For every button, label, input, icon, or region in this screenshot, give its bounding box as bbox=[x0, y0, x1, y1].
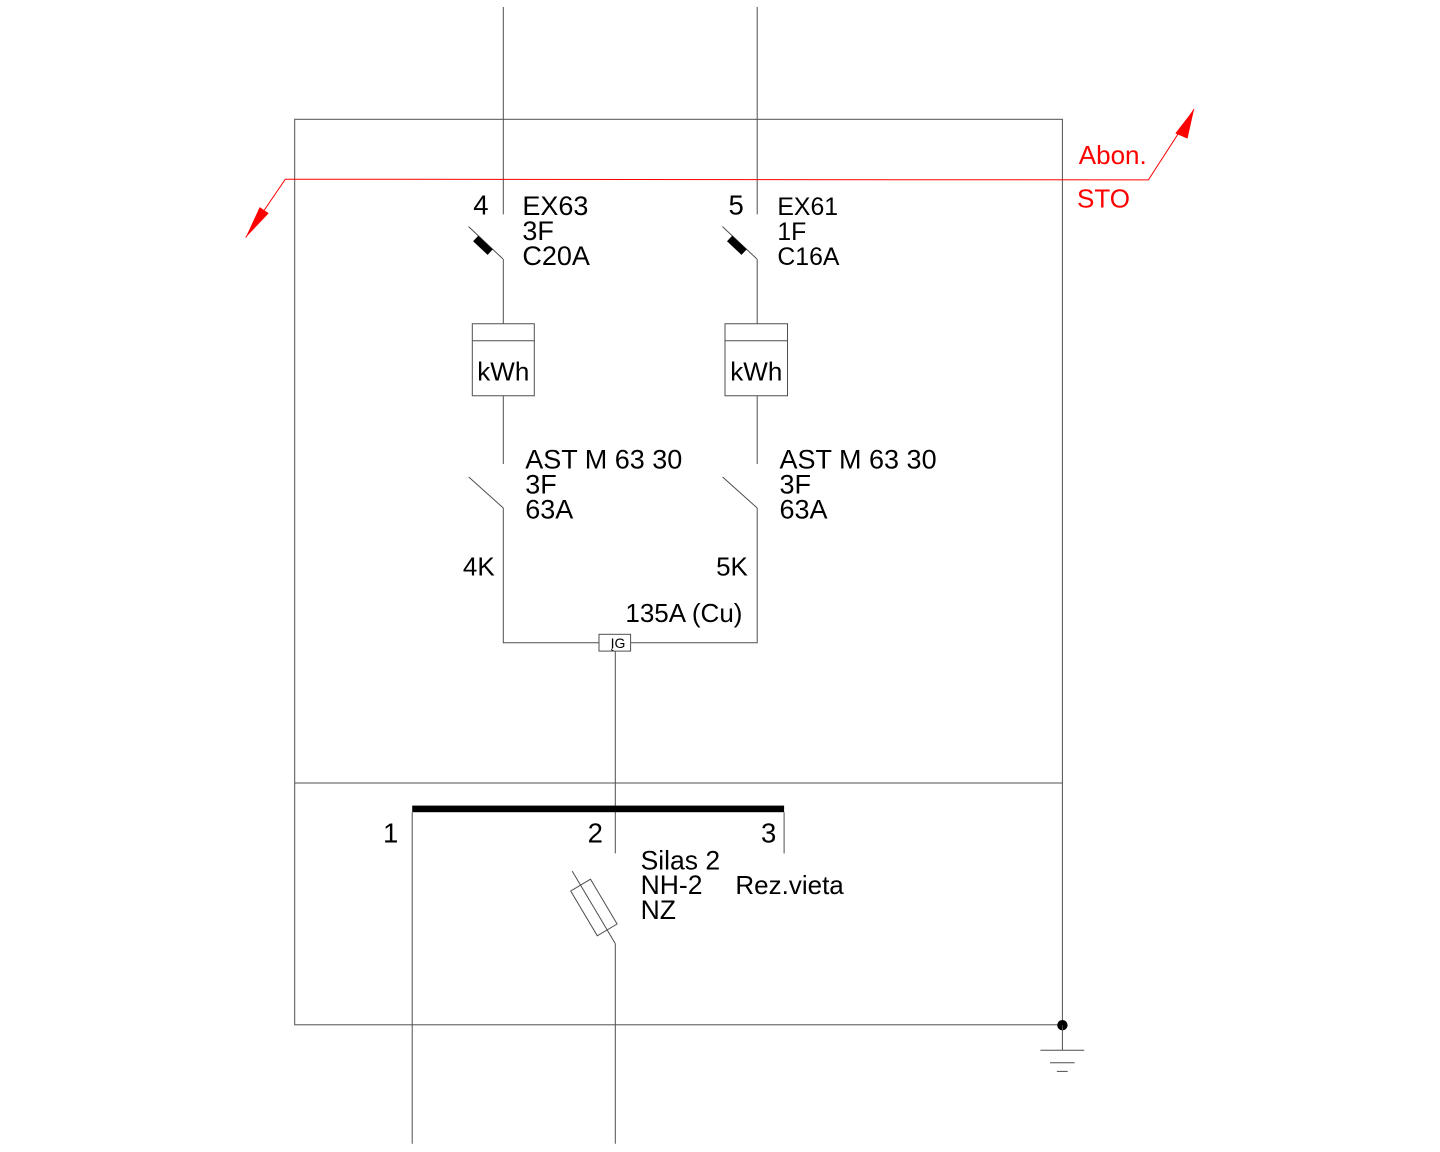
svg-text:4K: 4K bbox=[463, 552, 495, 582]
svg-text:135A (Cu): 135A (Cu) bbox=[625, 598, 742, 628]
svg-text:ĮG: ĮG bbox=[611, 635, 626, 651]
svg-text:Rez.vieta: Rez.vieta bbox=[735, 870, 844, 900]
svg-text:EX61: EX61 bbox=[777, 194, 838, 221]
svg-text:63A: 63A bbox=[780, 495, 828, 525]
svg-text:1F: 1F bbox=[777, 219, 806, 246]
svg-text:kWh: kWh bbox=[730, 356, 782, 386]
svg-text:C20A: C20A bbox=[522, 241, 590, 271]
svg-text:63A: 63A bbox=[525, 495, 573, 525]
svg-text:Abon.: Abon. bbox=[1079, 140, 1147, 170]
svg-text:3: 3 bbox=[761, 818, 776, 849]
svg-text:1: 1 bbox=[383, 818, 398, 849]
svg-text:4: 4 bbox=[473, 189, 488, 220]
svg-text:C16A: C16A bbox=[777, 244, 839, 271]
svg-text:kWh: kWh bbox=[477, 356, 529, 386]
svg-text:5: 5 bbox=[729, 189, 744, 220]
svg-text:STO: STO bbox=[1077, 184, 1130, 214]
svg-text:NZ: NZ bbox=[641, 895, 676, 925]
svg-text:2: 2 bbox=[588, 818, 603, 849]
svg-text:5K: 5K bbox=[716, 552, 748, 582]
